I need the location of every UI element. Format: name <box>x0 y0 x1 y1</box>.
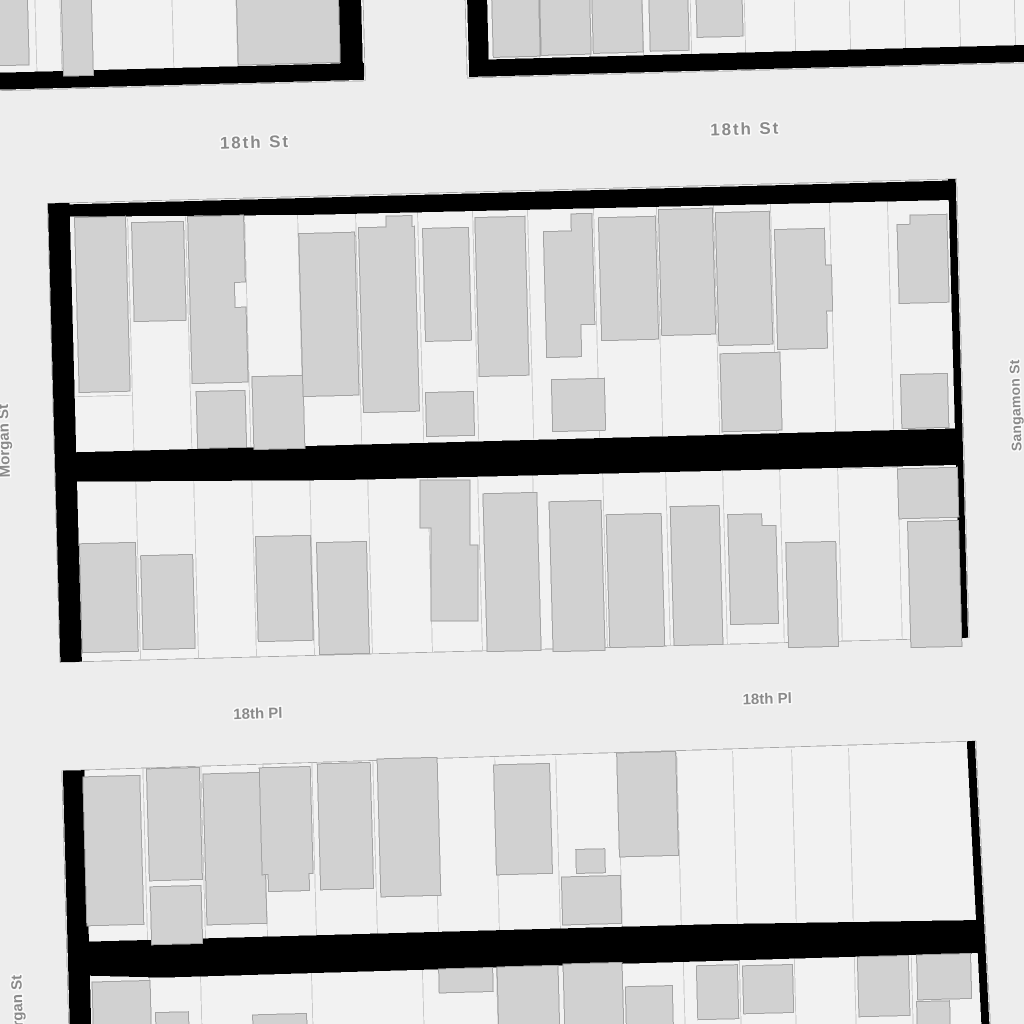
svg-text:Sangamon St: Sangamon St <box>1006 359 1024 451</box>
svg-text:18th St: 18th St <box>710 119 780 140</box>
svg-text:18th Pl: 18th Pl <box>233 705 283 723</box>
svg-text:18th Pl: 18th Pl <box>742 690 792 708</box>
svg-text:Morgan St: Morgan St <box>0 404 14 478</box>
svg-text:Morgan St: Morgan St <box>8 975 27 1024</box>
svg-text:18th St: 18th St <box>220 132 290 153</box>
